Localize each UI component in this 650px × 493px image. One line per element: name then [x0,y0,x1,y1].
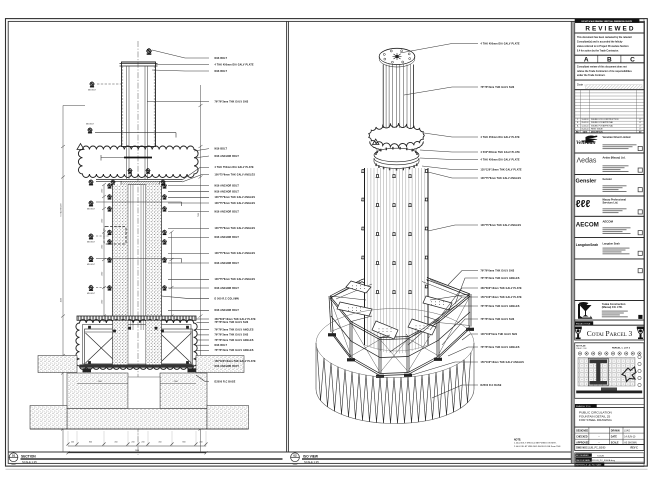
svg-text:Gensler: Gensler [576,178,598,184]
svg-text:ISSUED FOR APPROVAL: ISSUED FOR APPROVAL [591,124,613,127]
svg-text:100*75*6mm THK GALV ANGLES: 100*75*6mm THK GALV ANGLES [215,227,256,230]
svg-text:APPROVED: APPROVED [576,442,589,445]
svg-text:M16 BOLT: M16 BOLT [87,264,95,266]
svg-text:Aedas (Macau) Ltd.: Aedas (Macau) Ltd. [603,157,626,160]
svg-text:4 THK 450mm DIA GALV PLATE: 4 THK 450mm DIA GALV PLATE [481,42,521,45]
svg-text:1500: 1500 [102,299,104,304]
svg-text:100*75*6mm THK GALV ANGLES: 100*75*6mm THK GALV ANGLES [215,173,256,176]
svg-text:status referred to in Proj: status referred to in Project Procedure … [577,45,629,48]
svg-text:SCALE 1:25: SCALE 1:25 [304,460,319,464]
svg-text:ISSUED FOR CONSTRUCTION: ISSUED FOR CONSTRUCTION [591,119,619,121]
svg-text:LY: LY [639,119,642,121]
svg-text:LY: LY [639,122,642,124]
svg-text:26-05-10: 26-05-10 [581,122,588,124]
svg-text:SCALE 1:25: SCALE 1:25 [22,460,37,464]
svg-text:SECTION: SECTION [21,454,36,458]
svg-text:100*75*6mm THK GALV ANGLES: 100*75*6mm THK GALV ANGLES [215,202,256,205]
svg-text:200: 200 [71,441,74,443]
svg-text:M16 BOLT: M16 BOLT [215,58,228,60]
svg-text:76*76*3mm THK GALV SHS: 76*76*3mm THK GALV SHS [481,86,515,89]
svg-text:511UB_PC_B5/90: 511UB_PC_B5/90 [586,447,606,450]
svg-text:C: C [577,119,579,121]
svg-text:M16 ANCHOR BOLT: M16 ANCHOR BOLT [215,309,240,312]
svg-text:M16 ANCHOR BOLT: M16 ANCHOR BOLT [215,287,240,290]
svg-text:AS SHOWN: AS SHOWN [624,442,637,445]
svg-text:D2500 R.C BASE: D2500 R.C BASE [481,384,502,387]
svg-text:450: 450 [114,441,117,443]
svg-text:1500: 1500 [102,218,104,223]
svg-text:Consultant(s) and is accord: Consultant(s) and is accorded the felici… [577,41,623,44]
svg-text:450: 450 [158,441,161,443]
svg-text:CAD FILE NAME:: CAD FILE NAME: [576,459,591,462]
svg-text:76*76*6mm THK GALV SHS: 76*76*6mm THK GALV SHS [481,269,515,272]
svg-text:76*76*3mm THK GALV ANGLES: 76*76*3mm THK GALV ANGLES [215,349,254,352]
svg-text:NOTE:: NOTE: [514,439,521,441]
svg-text:4 THK 450mm DIA GALV PLATE: 4 THK 450mm DIA GALV PLATE [215,63,255,66]
svg-text:14-JUN-10: 14-JUN-10 [624,436,636,438]
svg-text:CHECKED: CHECKED [576,436,588,438]
svg-text:Date :: Date : [577,82,585,86]
svg-text:M16 BOLT: M16 BOLT [87,242,95,244]
svg-text:7500: 7500 [198,213,200,217]
svg-text:2600: 2600 [135,450,139,452]
svg-text:Services Ltd.: Services Ltd. [603,202,619,205]
svg-text:76*76*3mm THK GALV SHS: 76*76*3mm THK GALV SHS [481,318,515,321]
svg-text:100*75*6mm THK GALV ANGLES: 100*75*6mm THK GALV ANGLES [215,252,256,255]
svg-text:10-06-10: 10-06-10 [581,119,588,121]
svg-text:1500: 1500 [102,188,104,193]
svg-text:4500: 4500 [61,298,63,302]
svg-text:M16 ANCHOR BOLT: M16 ANCHOR BOLT [215,210,240,213]
svg-text:M16 BOLT: M16 BOLT [215,345,228,347]
svg-text:DWG NO: DWG NO [576,448,586,450]
svg-text:Langdon Seah: Langdon Seah [603,242,621,245]
svg-text:AECOM: AECOM [576,221,599,228]
svg-text:100*75*6mm THK GALV ANGLES: 100*75*6mm THK GALV ANGLES [215,278,256,281]
svg-text:200: 200 [131,441,134,443]
svg-text:REV C: REV C [631,447,639,450]
svg-text:--: -- [598,436,600,438]
svg-text:FIRST ISSUE: FIRST ISSUE [591,128,603,130]
svg-text:SCALE: SCALE [611,442,619,445]
svg-text:ISO VIEW: ISO VIEW [303,454,319,458]
svg-text:76*76*3mm THK GALV SHS: 76*76*3mm THK GALV SHS [215,334,249,337]
svg-text:Λedas: Λedas [577,157,597,164]
svg-text:120*120*10mm THK GALV PLATE: 120*120*10mm THK GALV PLATE [481,168,522,171]
svg-text:M16 BOLT: M16 BOLT [88,90,96,92]
svg-text:under the Trade Contract.: under the Trade Contract. [577,74,606,77]
svg-text:B: B [607,56,612,63]
svg-text:800: 800 [89,441,92,443]
svg-text:M16 BOLT: M16 BOLT [87,209,95,211]
svg-text:76*76*3mm THK GALV ANGLES: 76*76*3mm THK GALV ANGLES [215,329,254,332]
svg-text:150*100*10mm THK GALV ANGLES: 150*100*10mm THK GALV ANGLES [481,361,525,364]
svg-text:05-05-10: 05-05-10 [581,128,588,130]
svg-text:1. ALL BOLT SHOULD BE FIXING O: 1. ALL BOLT SHOULD BE FIXING ON SITE. [514,442,557,445]
svg-text:M16 BOLT: M16 BOLT [215,71,228,73]
svg-text:TOTAL HEIGHT: TOTAL HEIGHT [60,202,63,216]
svg-text:DATE: DATE [611,435,618,438]
svg-text:4 THK 450mm DIA GALV PLATE: 4 THK 450mm DIA GALV PLATE [481,136,521,139]
svg-text:M16 ANCHOR BOLT: M16 ANCHOR BOLT [215,185,240,188]
svg-text:This document has been reviewe: This document has been reviewed by the r… [577,36,632,39]
svg-text:M16 BOLT: M16 BOLT [87,293,95,295]
svg-text:D 500 R.C COLUMN: D 500 R.C COLUMN [215,299,239,301]
svg-text:511UB: 511UB [597,455,604,457]
svg-text:ℓℓℓ: ℓℓℓ [576,199,591,210]
svg-text:AECOM: AECOM [603,219,614,223]
svg-text:100*75*6mm THK GALV ANGLES: 100*75*6mm THK GALV ANGLES [481,224,522,227]
svg-text:FOR STEEL DRAWING: FOR STEEL DRAWING [579,418,612,422]
svg-text:460*600*10mm THK GALV PLATE: 460*600*10mm THK GALV PLATE [215,318,256,321]
svg-text:100*100*6mm THK GALV SHS: 100*100*6mm THK GALV SHS [481,333,518,336]
svg-text:LY: LY [639,125,642,127]
svg-text:200: 200 [141,441,144,443]
svg-text:100*75*6mm THK GALV ANGLES: 100*75*6mm THK GALV ANGLES [215,196,256,199]
svg-text:ISSUED FOR APPROVAL: ISSUED FOR APPROVAL [591,121,613,124]
svg-text:A: A [577,124,579,127]
svg-text:5.4 for action by the Tra: 5.4 for action by the Trade Contractor. [577,49,619,52]
svg-text:M16 ANCHOR BOLT: M16 ANCHOR BOLT [215,191,240,194]
svg-text:76*76*3mm THK GALV SHS: 76*76*3mm THK GALV SHS [215,100,249,103]
svg-text:800: 800 [182,441,185,443]
svg-text:Venetian Orient Limited: Venetian Orient Limited [603,136,631,139]
svg-text:M16 BOLT: M16 BOLT [86,124,94,126]
svg-text:2. ALL FILLET WELDED SHOULD BE: 2. ALL FILLET WELDED SHOULD BE 3mm THK. [514,445,561,448]
svg-text:REVIEWED: REVIEWED [585,26,635,33]
svg-text:D2500 R.C BASE: D2500 R.C BASE [215,380,236,383]
svg-text:76*76*3mm THK GALV ANGLES: 76*76*3mm THK GALV ANGLES [481,277,520,280]
svg-text:4 THK 750mm DIA GALV PLATE: 4 THK 750mm DIA GALV PLATE [215,166,255,169]
svg-text:1500: 1500 [102,271,104,276]
svg-text:M16 BOLT: M16 BOLT [215,148,228,150]
svg-text:COTAI PARCEL 3: COTAI PARCEL 3 [587,329,633,338]
svg-text:150*100*10mm THK GALV PLATE: 150*100*10mm THK GALV PLATE [481,296,522,299]
svg-text:150*100*10mm THK GALV PLATE: 150*100*10mm THK GALV PLATE [215,360,256,363]
svg-text:M16 ANCHOR BOLT: M16 ANCHOR BOLT [215,365,240,368]
svg-text:DRAWN: DRAWN [611,429,620,432]
svg-text:76*76*3mm THK GALV ANGLES: 76*76*3mm THK GALV ANGLES [481,305,520,308]
svg-text:200: 200 [199,441,202,443]
svg-text:02: 02 [293,453,297,457]
svg-text:REFERENCE CAD FILE NAME: REFERENCE CAD FILE NAME [576,463,602,466]
svg-text:511UB_PC_8000A.dwg: 511UB_PC_8000A.dwg [592,459,616,462]
svg-text:relieve the Trade Contracto: relieve the Trade Contractor of its resp… [577,70,633,73]
svg-text:Gensler: Gensler [603,178,612,181]
svg-text:1500: 1500 [102,244,104,249]
svg-text:M16 ANCHOR BOLT: M16 ANCHOR BOLT [215,155,240,158]
svg-text:A: A [584,56,589,63]
svg-text:(Macau) CO. LTD.: (Macau) CO. LTD. [602,306,623,309]
svg-text:M16 ANCHOR BOLT: M16 ANCHOR BOLT [215,236,240,239]
svg-text:B: B [577,122,579,124]
svg-text:01: 01 [12,453,16,457]
svg-text:76*76*3mm THK GALV SHS: 76*76*3mm THK GALV SHS [215,321,249,324]
svg-text:KEY NUMBER: KEY NUMBER [576,455,589,457]
svg-text:4 THK 450mm DIA GALV PLATE: 4 THK 450mm DIA GALV PLATE [481,158,521,161]
svg-text:PARCEL 1, LOT 2: PARCEL 1, LOT 2 [612,347,631,350]
svg-text:LYAO: LYAO [624,429,630,432]
svg-text:KEY PLAN: KEY PLAN [576,345,586,348]
svg-text:76*76*3mm THK GALV ANGLES: 76*76*3mm THK GALV ANGLES [215,339,254,342]
svg-text:DESIGNED: DESIGNED [576,430,588,432]
svg-text:LangdonSeah: LangdonSeah [576,243,598,247]
svg-text:Consultant review of this: Consultant review of this document does … [577,66,627,69]
svg-text:C: C [630,56,635,63]
svg-text:100*75*6mm THK GALV ANGLES: 100*75*6mm THK GALV ANGLES [481,177,522,180]
svg-text:4 500*450mm THK GALV PLATE: 4 500*450mm THK GALV PLATE [481,151,521,154]
svg-text:76*76*3mm THK GALV ANGLES: 76*76*3mm THK GALV ANGLES [481,346,520,349]
svg-text:12-05-10: 12-05-10 [581,125,588,127]
svg-text:M16 ANCHOR BOLT: M16 ANCHOR BOLT [215,262,240,265]
svg-text:460*600*10mm THK GALV PLATE: 460*600*10mm THK GALV PLATE [481,287,522,290]
